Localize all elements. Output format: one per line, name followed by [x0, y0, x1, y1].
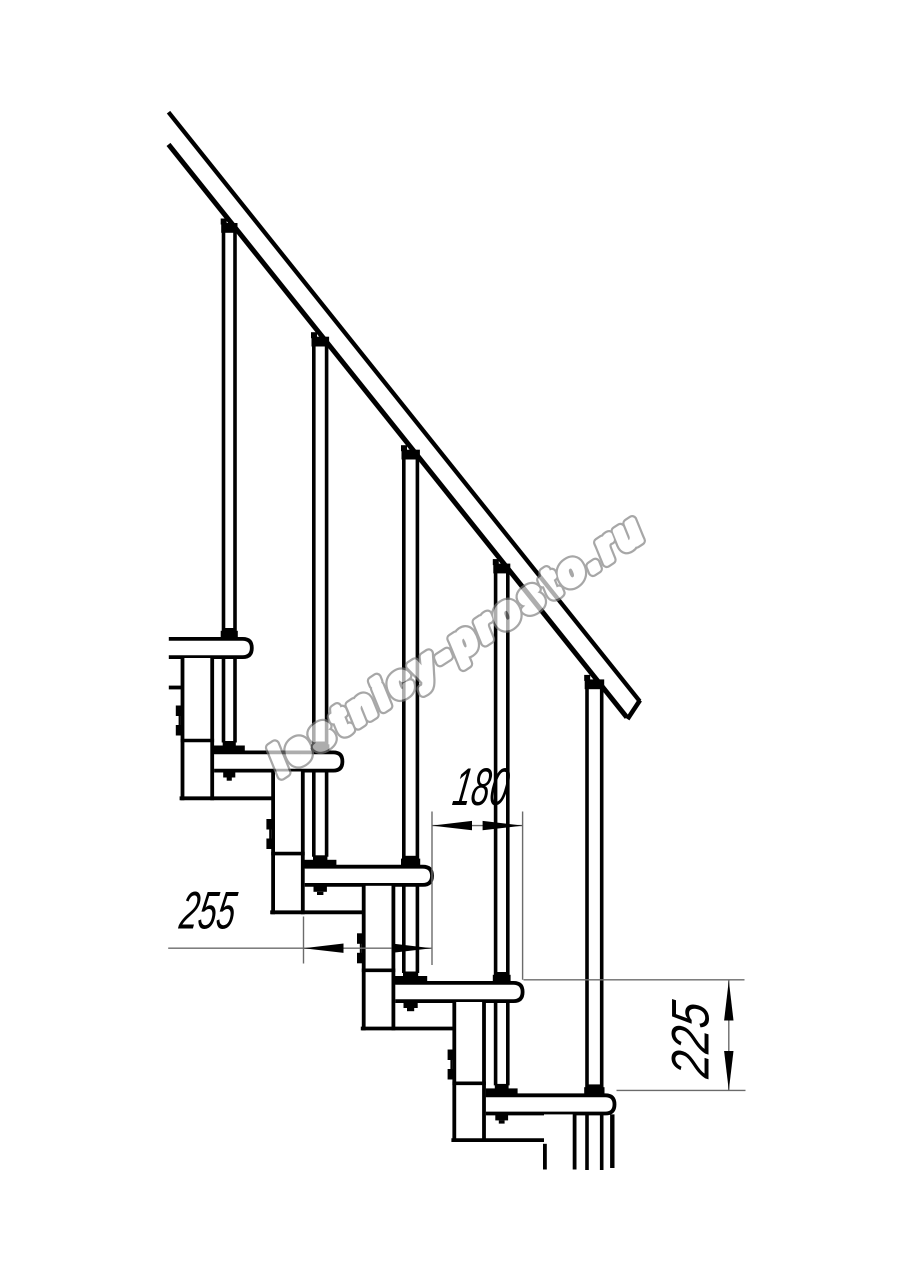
svg-text:255: 255 [175, 882, 240, 940]
svg-text:225: 225 [661, 997, 720, 1082]
svg-text:180: 180 [449, 759, 513, 817]
